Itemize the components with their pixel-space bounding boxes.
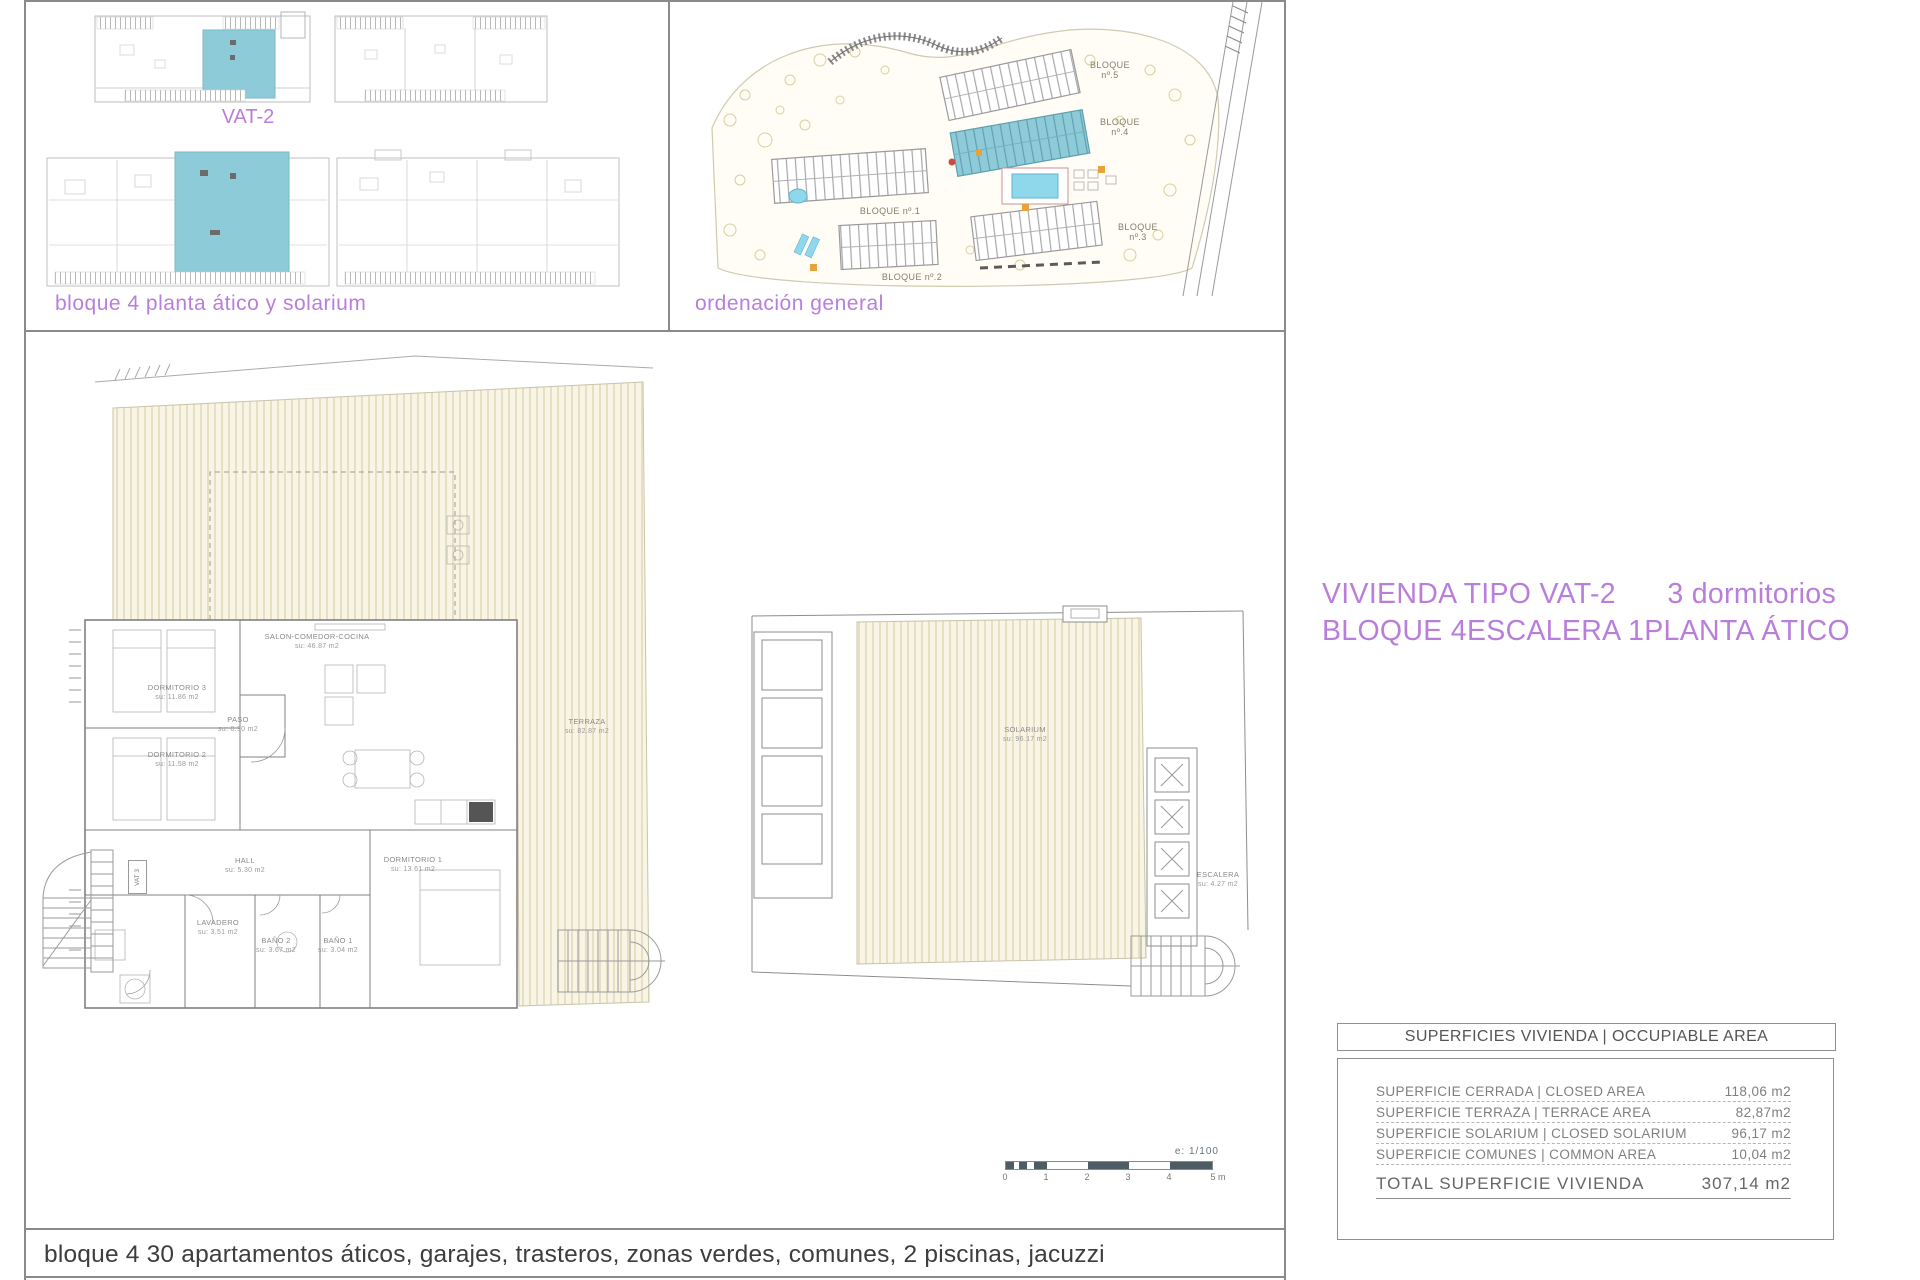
scale-bar: e: 1/100 0 1 2 3 4 5 m [1005, 1146, 1235, 1185]
plot-boundary-line [95, 356, 653, 382]
solarium-top-notch [1063, 606, 1107, 622]
border-bottom [24, 1276, 1286, 1278]
siteplan-caption: ordenación general [695, 292, 884, 316]
scale-bar-graphic [1005, 1161, 1213, 1170]
bloque5-label: BLOQUEnº.5 [1075, 60, 1145, 81]
vat3-tag: VAT 3 [128, 860, 147, 894]
room-label-escalera: ESCALERAsu: 4.27 m2 [1173, 870, 1263, 889]
table-row-terraza: SUPERFICIE TERRAZA | TERRACE AREA82,87m2 [1376, 1102, 1791, 1123]
title-line-1: VIVIENDA TIPO VAT-2 3 dormitorios [1322, 578, 1836, 611]
bloque1-label: BLOQUE nº.1 [840, 206, 940, 216]
room-label-hall: HALLsu: 5.30 m2 [180, 856, 310, 875]
bloque4-label: BLOQUEnº.4 [1085, 117, 1155, 138]
keyplan-panel-svg [25, 0, 670, 330]
solarium-left-closets [754, 632, 832, 898]
vat2-unit-label: VAT-2 [200, 106, 296, 129]
keyplan-atico-b [337, 150, 619, 286]
room-label-bano1: BAÑO 1su: 3.04 m2 [273, 936, 403, 955]
building-bloque-2 [839, 220, 938, 269]
room-label-solarium: SOLARIUMsu: 96.17 m2 [960, 725, 1090, 744]
bloque2-label: BLOQUE nº.2 [862, 272, 962, 282]
title-vivienda-tipo: VIVIENDA TIPO VAT-2 [1322, 578, 1616, 611]
table-row-comunes: SUPERFICIE COMUNES | COMMON AREA10,04 m2 [1376, 1144, 1791, 1165]
table-row-total: TOTAL SUPERFICIE VIVIENDA307,14 m2 [1376, 1174, 1791, 1199]
areas-table-header: SUPERFICIES VIVIENDA | OCCUPIABLE AREA [1337, 1023, 1836, 1051]
title-planta: PLANTA ÁTICO [1644, 615, 1850, 648]
room-label-terraza: TERRAZAsu: 82.87 m2 [522, 717, 652, 736]
bloque3-label: BLOQUEnº.3 [1103, 222, 1173, 243]
room-label-salon: SALON-COMEDOR-COCINAsu: 46.87 m2 [252, 632, 382, 651]
scale-label: e: 1/100 [1005, 1146, 1235, 1157]
table-row-solarium: SUPERFICIE SOLARIUM | CLOSED SOLARIUM96,… [1376, 1123, 1791, 1144]
siteplan-svg [670, 0, 1285, 330]
title-line-2: BLOQUE 4 ESCALERA 1 PLANTA ÁTICO [1322, 615, 1836, 648]
scale-ticks: 0 1 2 3 4 5 m [1005, 1172, 1235, 1185]
room-label-dormitorio1: DORMITORIO 1su: 13.61 m2 [348, 855, 478, 874]
plan-sheet: VAT-2 bloque 4 planta ático y solarium [0, 0, 1920, 1280]
title-dormitorios: 3 dormitorios [1667, 578, 1836, 611]
solarium-right-units [1147, 748, 1197, 946]
solarium-hatch-area [857, 618, 1146, 964]
room-label-dormitorio2: DORMITORIO 2su: 11.58 m2 [112, 750, 242, 769]
table-row-cerrada: SUPERFICIE CERRADA | CLOSED AREA118,06 m… [1376, 1081, 1791, 1102]
room-label-lavadero: LAVADEROsu: 3.51 m2 [153, 918, 283, 937]
title-bloque: BLOQUE 4 [1322, 615, 1467, 648]
dimension-ticks [69, 630, 81, 950]
keyplan-atico-a [47, 152, 329, 286]
keyplan-solarium-a [95, 12, 310, 102]
title-escalera: ESCALERA 1 [1467, 615, 1644, 648]
room-label-paso: PASOsu: 0.90 m2 [173, 715, 303, 734]
floorplan-svg [25, 330, 1285, 1230]
keyplan-solarium-b [335, 16, 547, 102]
footer-caption: bloque 4 30 apartamentos áticos, garajes… [44, 1241, 1105, 1269]
areas-table: SUPERFICIE CERRADA | CLOSED AREA118,06 m… [1337, 1058, 1834, 1240]
keyplan-caption: bloque 4 planta ático y solarium [55, 292, 366, 316]
room-label-dormitorio3: DORMITORIO 3su: 11.86 m2 [112, 683, 242, 702]
